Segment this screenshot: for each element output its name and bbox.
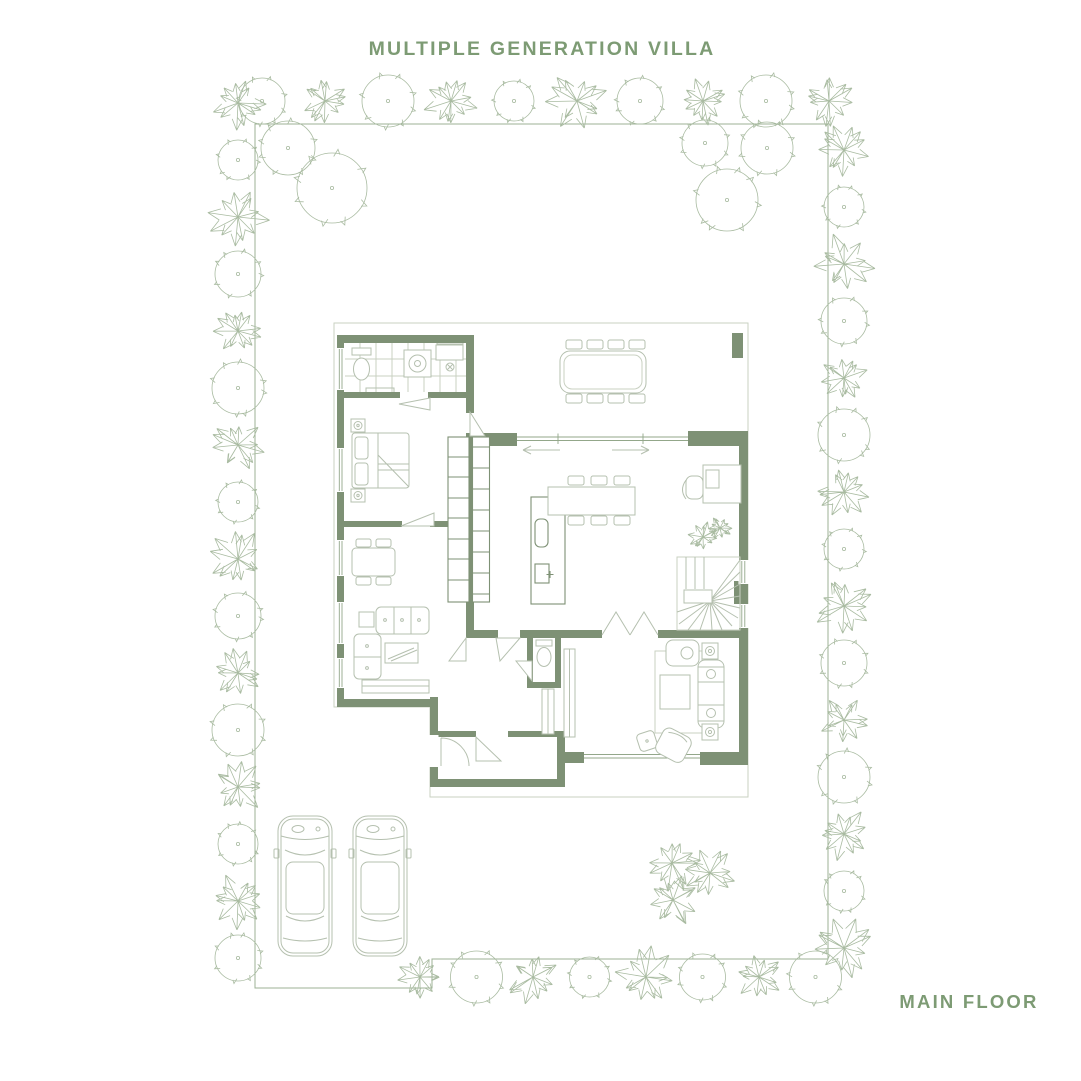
tree-icon	[218, 761, 260, 807]
tree-icon	[614, 75, 664, 125]
tree-icon	[216, 480, 260, 524]
tree-icon	[216, 875, 260, 930]
page-title: MULTIPLE GENERATION VILLA	[369, 38, 716, 60]
sofa	[698, 660, 724, 728]
chair	[376, 539, 391, 547]
chair	[568, 516, 584, 525]
stair-landing	[684, 590, 712, 603]
tv-bench	[362, 680, 429, 693]
stairs	[677, 557, 740, 630]
tree-icon	[218, 822, 258, 866]
tree-icon	[739, 73, 794, 128]
tree-icon	[818, 297, 869, 347]
tree-icon	[818, 470, 869, 515]
loveseat	[354, 634, 381, 679]
tree-icon	[819, 126, 869, 177]
tree-icon	[615, 946, 672, 1000]
tree-icon	[215, 933, 263, 984]
tree-icon	[739, 120, 795, 175]
chair	[376, 577, 391, 585]
toilet-icon	[352, 348, 371, 380]
chair	[591, 476, 607, 485]
living-room	[636, 640, 724, 765]
tree-icon	[808, 78, 852, 127]
tree-icon	[213, 427, 265, 469]
tree-icon	[815, 919, 871, 978]
chair	[591, 516, 607, 525]
door-leaf	[399, 398, 430, 410]
tree-icon	[678, 953, 726, 1003]
bedroom	[351, 419, 409, 502]
armchair	[666, 640, 699, 666]
sliding-door-arrow	[612, 446, 649, 454]
chair	[568, 476, 584, 485]
tree-icon	[216, 648, 259, 693]
house	[334, 323, 749, 797]
tree-icon	[259, 118, 317, 175]
side-table	[359, 612, 374, 627]
tree-icon	[213, 592, 263, 642]
wardrobe-shelves	[448, 437, 490, 602]
tree-icon	[215, 249, 264, 298]
tree-icon	[398, 956, 440, 998]
door-leaf	[449, 638, 466, 661]
laundry-room	[344, 338, 466, 394]
tree-icon	[210, 531, 257, 580]
chair	[356, 577, 371, 585]
chair	[566, 340, 582, 349]
tree-icon	[294, 149, 367, 226]
tree-icon	[360, 73, 416, 130]
tree-icon	[424, 81, 477, 123]
side-table-lamp	[702, 724, 718, 740]
nightstand	[351, 419, 365, 432]
terrace-dining	[560, 340, 646, 403]
plant-icon	[688, 522, 717, 549]
tree-icon	[817, 582, 871, 633]
workspace	[683, 465, 742, 503]
chair	[614, 476, 630, 485]
tree-icon	[545, 78, 606, 129]
door-leaf	[476, 737, 501, 761]
tree-icon	[739, 956, 780, 997]
nightstand	[351, 489, 365, 502]
chair	[608, 394, 624, 403]
tree-icon	[568, 957, 612, 999]
floor-plan-page: MULTIPLE GENERATION VILLA MAIN FLOOR	[0, 0, 1081, 1081]
tree-icon	[305, 80, 346, 123]
tree-icon	[510, 957, 557, 1004]
armchair	[653, 726, 694, 765]
chair	[629, 394, 645, 403]
hall-closet	[564, 649, 575, 737]
tree-icon	[822, 528, 866, 571]
chair	[629, 340, 645, 349]
tree-icon	[684, 79, 725, 126]
desk-chair	[683, 476, 704, 499]
chair	[356, 539, 371, 547]
chair	[566, 394, 582, 403]
tree-icon	[787, 950, 842, 1006]
kitchen-table	[548, 487, 635, 515]
chair	[614, 516, 630, 525]
sliding-door-arrow	[523, 446, 560, 454]
chair	[587, 340, 603, 349]
car-icon	[349, 816, 411, 956]
door-leaf	[496, 638, 520, 661]
chair	[608, 340, 624, 349]
tree-icon	[492, 79, 536, 122]
coffee-table	[385, 643, 418, 663]
floor-plan-canvas: MULTIPLE GENERATION VILLA MAIN FLOOR	[0, 0, 1081, 1081]
sofa	[376, 607, 429, 634]
car-icon	[274, 816, 336, 956]
tree-icon	[211, 359, 267, 417]
coffee-table	[660, 675, 690, 709]
desk	[703, 465, 741, 503]
side-table-lamp	[702, 643, 718, 659]
terrace-table	[560, 351, 646, 393]
tree-icon	[817, 748, 872, 804]
annex-living-dining	[352, 539, 429, 693]
driveway	[274, 816, 411, 956]
double-door	[602, 612, 658, 635]
floor-label: MAIN FLOOR	[899, 991, 1038, 1012]
dining-table	[352, 548, 395, 576]
tree-icon	[820, 639, 868, 688]
chair	[587, 394, 603, 403]
tree-icon	[213, 312, 261, 349]
door-leaf	[516, 661, 532, 681]
wc-toilet-icon	[536, 640, 552, 667]
tree-icon	[216, 139, 260, 180]
tree-icon	[822, 812, 865, 861]
kitchen	[531, 476, 635, 604]
washing-machine-icon	[404, 350, 431, 377]
tree-icon	[694, 167, 762, 231]
door-leaf	[401, 513, 434, 526]
shoe-cabinet	[542, 689, 554, 734]
tree-icon	[210, 704, 265, 757]
bed	[352, 433, 409, 488]
entry-door-arc	[441, 738, 469, 766]
tree-icon	[208, 192, 270, 246]
door-leaf	[470, 412, 485, 436]
tree-icon	[824, 871, 865, 913]
tree-icon	[680, 118, 730, 169]
tree-icon	[818, 407, 870, 464]
tree-icon	[814, 234, 875, 289]
